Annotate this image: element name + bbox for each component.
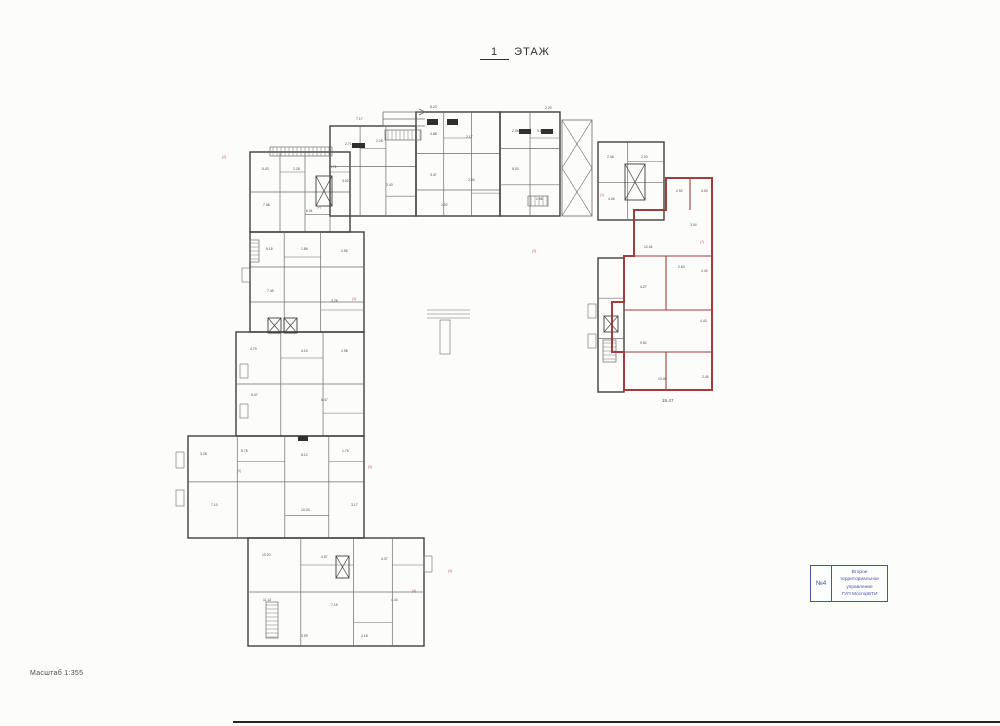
scanned-floor-plan-page: 1ЭТАЖ 5.432.283.717.086.012.712.283.022.… — [0, 0, 1000, 726]
svg-text:4.27: 4.27 — [640, 285, 647, 289]
svg-text:7.10: 7.10 — [211, 503, 218, 507]
svg-text:7.08: 7.08 — [263, 203, 270, 207]
svg-text:3.28: 3.28 — [200, 452, 207, 456]
svg-text:3.17: 3.17 — [351, 503, 358, 507]
svg-text:1.76: 1.76 — [342, 449, 349, 453]
svg-text:2.28: 2.28 — [376, 139, 383, 143]
svg-text:13.40: 13.40 — [658, 377, 667, 381]
svg-text:(2): (2) — [317, 205, 321, 209]
svg-text:5.78: 5.78 — [241, 449, 248, 453]
svg-text:15.47: 15.47 — [662, 398, 674, 403]
svg-text:2.92: 2.92 — [676, 189, 683, 193]
svg-text:2.56: 2.56 — [341, 249, 348, 253]
svg-text:2.71: 2.71 — [345, 142, 352, 146]
svg-text:4.87: 4.87 — [321, 555, 328, 559]
svg-text:3.09: 3.09 — [301, 634, 308, 638]
svg-text:2.40: 2.40 — [701, 269, 708, 273]
svg-text:5.43: 5.43 — [262, 167, 269, 171]
svg-text:6.15: 6.15 — [266, 247, 273, 251]
svg-text:4.79: 4.79 — [250, 347, 257, 351]
svg-text:2.28: 2.28 — [293, 167, 300, 171]
svg-text:(3): (3) — [532, 249, 536, 253]
svg-text:4.06: 4.06 — [608, 197, 615, 201]
svg-text:2.83: 2.83 — [678, 265, 685, 269]
svg-text:7.17: 7.17 — [356, 117, 363, 121]
svg-text:11.12: 11.12 — [263, 598, 271, 602]
svg-text:3.10: 3.10 — [301, 349, 308, 353]
scan-edge-line — [233, 721, 1000, 723]
floor-plan-drawing: 5.432.283.717.086.012.712.283.022.434.88… — [0, 0, 1000, 726]
svg-text:3.47: 3.47 — [430, 173, 437, 177]
stamp-org-line-1: Второе территориальное — [834, 569, 885, 584]
svg-text:2.03: 2.03 — [641, 155, 648, 159]
svg-text:(3): (3) — [352, 297, 356, 301]
svg-text:6.47: 6.47 — [321, 398, 328, 402]
svg-text:7.49: 7.49 — [267, 289, 274, 293]
svg-text:3.02: 3.02 — [342, 179, 349, 183]
svg-text:2.17: 2.17 — [466, 135, 473, 139]
svg-text:2.56: 2.56 — [536, 197, 543, 201]
svg-text:3.18: 3.18 — [361, 634, 368, 638]
svg-text:3.00: 3.00 — [701, 189, 708, 193]
svg-text:3.71: 3.71 — [330, 165, 337, 169]
svg-text:2.43: 2.43 — [386, 183, 393, 187]
stamp-org-line-3: ГУП МосгорБТИ — [834, 591, 885, 598]
svg-text:(5): (5) — [368, 465, 372, 469]
svg-text:5.47: 5.47 — [251, 393, 258, 397]
svg-text:(1): (1) — [600, 193, 604, 197]
svg-text:3.04: 3.04 — [690, 223, 697, 227]
svg-text:10.20: 10.20 — [262, 553, 271, 557]
svg-text:2.84: 2.84 — [468, 178, 475, 182]
bti-stamp: №4 Второе территориальное управление ГУП… — [810, 565, 888, 602]
stamp-org-line-2: управление — [834, 584, 885, 591]
svg-text:(7): (7) — [700, 240, 704, 244]
svg-text:1.86: 1.86 — [301, 247, 308, 251]
stamp-number: №4 — [811, 566, 832, 601]
svg-text:2.20: 2.20 — [545, 106, 552, 110]
svg-text:5.02: 5.02 — [512, 167, 519, 171]
svg-text:12.44: 12.44 — [644, 245, 653, 249]
svg-text:4.43: 4.43 — [391, 598, 398, 602]
svg-text:3.17: 3.17 — [537, 129, 544, 133]
svg-text:4.43: 4.43 — [700, 319, 707, 323]
svg-text:2.05: 2.05 — [702, 375, 709, 379]
svg-text:8.23: 8.23 — [430, 105, 437, 109]
svg-text:9.52: 9.52 — [640, 341, 647, 345]
svg-text:(6): (6) — [237, 469, 241, 473]
svg-text:3.37: 3.37 — [381, 557, 388, 561]
svg-text:1.92: 1.92 — [441, 203, 448, 207]
svg-text:2.46: 2.46 — [607, 155, 614, 159]
svg-text:7.19: 7.19 — [331, 603, 338, 607]
svg-text:(4): (4) — [448, 569, 452, 573]
floor-plan: 5.432.283.717.086.012.712.283.022.434.88… — [0, 0, 1000, 726]
svg-text:6.01: 6.01 — [306, 209, 313, 213]
svg-text:2.06: 2.06 — [512, 129, 519, 133]
svg-text:10.03: 10.03 — [301, 508, 310, 512]
scale-label: Масштаб 1:355 — [30, 670, 83, 677]
svg-text:2.98: 2.98 — [341, 349, 348, 353]
svg-text:8.12: 8.12 — [301, 453, 308, 457]
svg-text:(4): (4) — [412, 589, 416, 593]
stamp-text: Второе территориальное управление ГУП Мо… — [832, 566, 887, 601]
svg-text:3.28: 3.28 — [331, 299, 338, 303]
svg-text:4.88: 4.88 — [430, 132, 437, 136]
svg-text:(2): (2) — [222, 155, 226, 159]
